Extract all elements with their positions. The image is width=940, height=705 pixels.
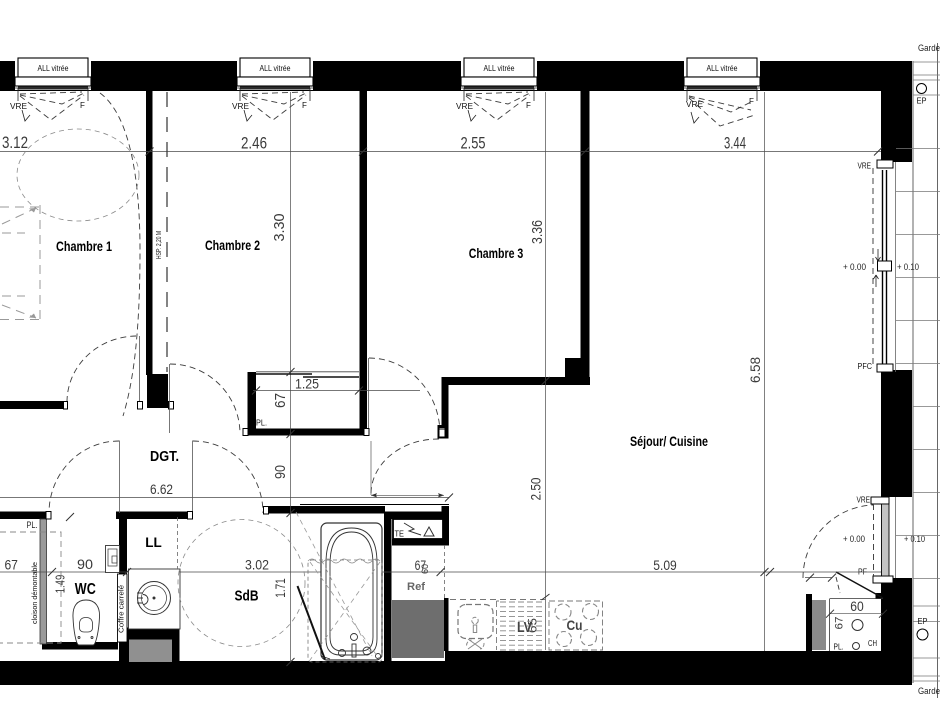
svg-text:+ 0.00: + 0.00 [843,534,865,544]
svg-text:Cu: Cu [567,617,583,633]
svg-text:F: F [80,101,85,110]
svg-text:90: 90 [272,465,289,479]
svg-text:Garde: Garde [918,43,940,53]
svg-text:DGT.: DGT. [150,449,179,465]
svg-text:PL.: PL. [27,520,38,530]
svg-text:3.44: 3.44 [724,134,746,153]
svg-text:F: F [749,97,754,106]
svg-text:2.55: 2.55 [461,134,486,153]
svg-text:+ 0.00: + 0.00 [843,262,866,272]
svg-text:PFC: PFC [858,362,873,371]
svg-text:6.58: 6.58 [747,357,763,383]
svg-text:VRE: VRE [456,102,473,111]
svg-text:cloison démontable: cloison démontable [30,562,39,624]
svg-text:VRE: VRE [858,162,872,171]
svg-text:VRE: VRE [232,102,249,111]
svg-text:PL.: PL. [834,643,844,652]
svg-text:3.30: 3.30 [271,214,288,242]
svg-text:Ref: Ref [407,581,425,593]
svg-text:1.71: 1.71 [272,578,288,598]
svg-text:1.49: 1.49 [53,575,68,594]
svg-text:90: 90 [77,557,93,572]
svg-text:Coffre carrelé: Coffre carrelé [117,585,126,633]
svg-text:TE: TE [395,530,405,539]
svg-text:60: 60 [850,599,864,614]
svg-text:Séjour/ Cuisine: Séjour/ Cuisine [630,433,708,449]
svg-text:2.46: 2.46 [241,134,267,153]
svg-text:Garde: Garde [918,686,940,696]
svg-text:3.36: 3.36 [529,220,546,244]
svg-text:HSP: 2,20 M: HSP: 2,20 M [154,231,163,259]
svg-text:6.62: 6.62 [150,481,173,497]
svg-text:WC: WC [75,581,96,598]
svg-text:67: 67 [272,393,289,408]
svg-text:+ 0.10: + 0.10 [897,262,919,272]
svg-text:LL: LL [145,534,162,550]
svg-text:F: F [526,101,531,110]
svg-text:PL.: PL. [256,419,267,428]
svg-text:2.50: 2.50 [528,477,544,500]
svg-text:Chambre 2: Chambre 2 [205,237,260,253]
svg-text:EP: EP [918,617,928,626]
svg-text:LV: LV [517,619,532,636]
svg-text:VRE: VRE [857,496,871,505]
svg-text:ALL vitrée: ALL vitrée [484,64,515,73]
svg-text:ALL vitrée: ALL vitrée [707,64,738,73]
svg-text:ALL vitrée: ALL vitrée [260,64,291,73]
svg-text:EP: EP [917,97,927,106]
svg-text:VRE: VRE [10,102,27,111]
svg-text:3.12: 3.12 [2,133,28,152]
svg-text:Chambre 1: Chambre 1 [56,238,112,254]
svg-text:F: F [302,101,307,110]
svg-text:3.02: 3.02 [245,557,269,573]
svg-text:Chambre 3: Chambre 3 [469,245,524,261]
svg-text:60: 60 [420,564,431,574]
svg-text:67: 67 [4,558,18,573]
svg-text:CH: CH [868,639,877,648]
svg-text:5.09: 5.09 [653,557,677,573]
svg-text:67: 67 [834,617,846,630]
svg-text:1.25: 1.25 [295,376,319,392]
svg-text:SdB: SdB [235,588,259,605]
svg-text:ALL vitrée: ALL vitrée [38,64,69,73]
svg-text:VRE: VRE [686,100,703,109]
